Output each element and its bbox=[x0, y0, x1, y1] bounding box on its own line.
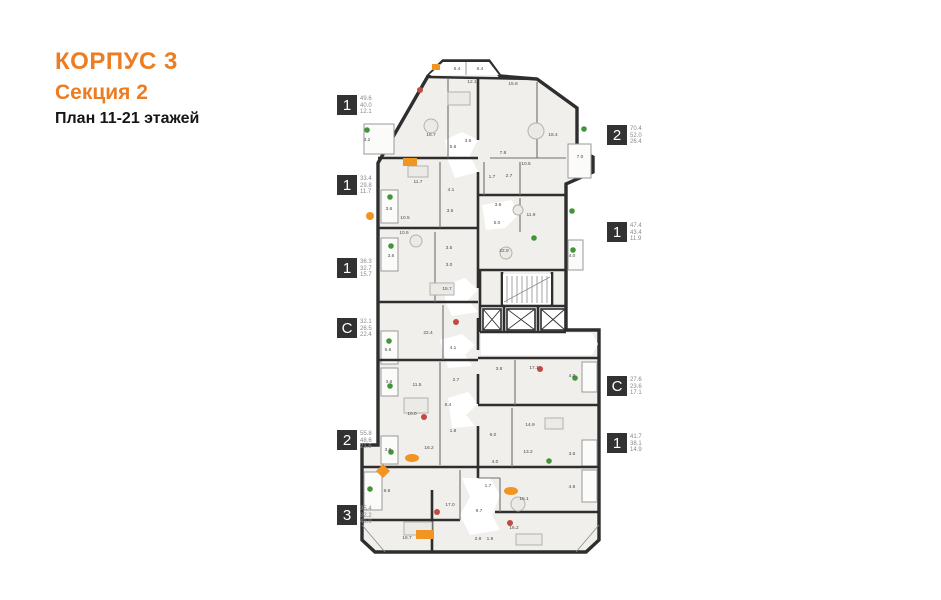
apartment-areas: 49.6 40.0 12.1 bbox=[360, 95, 372, 116]
room-area-label: 11.7 bbox=[414, 179, 423, 185]
room-area-label: 17.1 bbox=[529, 365, 539, 371]
room-area-label: 3.6 bbox=[569, 451, 576, 457]
room-area-label: 16.7 bbox=[402, 535, 412, 541]
area-value: 21.5 bbox=[360, 444, 372, 451]
area-value: 14.9 bbox=[630, 447, 642, 454]
room-area-label: 7.0 bbox=[577, 154, 584, 160]
apartment-badge-left-1: 1 49.6 40.0 12.1 bbox=[337, 95, 372, 116]
room-area-label: 1.8 bbox=[450, 428, 457, 434]
room-area-label: 17.0 bbox=[445, 502, 455, 508]
room-area-label: 6.4 bbox=[445, 402, 452, 408]
room-area-label: 15.8 bbox=[508, 81, 518, 87]
apartment-badge-left-3: 1 36.3 32.7 15.7 bbox=[337, 258, 372, 279]
apartment-badge-left-5: 2 55.8 48.6 21.5 bbox=[337, 430, 372, 451]
room-area-label: 3.6 bbox=[386, 206, 393, 212]
apartment-type: 1 bbox=[607, 433, 627, 453]
area-value: 17.1 bbox=[630, 390, 642, 397]
room-area-label: 4.0 bbox=[569, 373, 576, 379]
room-area-label: 3.6 bbox=[385, 447, 392, 453]
apartment-areas: 41.7 38.1 14.9 bbox=[630, 433, 642, 454]
room-area-label: 3.2 bbox=[364, 137, 371, 143]
room-area-label: 3.6 bbox=[388, 253, 395, 259]
area-value: 11.7 bbox=[360, 189, 372, 196]
room-area-label: 1.7 bbox=[489, 174, 496, 180]
room-area-label: 5.6 bbox=[385, 347, 392, 353]
room-area-label: 16.2 bbox=[424, 445, 434, 451]
apartment-type: 1 bbox=[337, 95, 357, 115]
apartment-areas: 70.4 52.0 26.4 bbox=[630, 125, 642, 146]
room-area-label: 4.0 bbox=[492, 459, 499, 465]
room-area-label: 22.9 bbox=[499, 248, 509, 254]
apartment-badge-left-6: 3 95.4 82.2 49.9 bbox=[337, 505, 372, 526]
room-area-label: 3.6 bbox=[386, 379, 393, 385]
room-area-label: 1.9 bbox=[487, 536, 494, 542]
apartment-areas: 32.1 26.5 22.4 bbox=[360, 318, 372, 339]
area-value: 11.9 bbox=[630, 236, 642, 243]
area-value: 26.4 bbox=[630, 139, 642, 146]
room-area-label: 22.4 bbox=[423, 330, 433, 336]
apartment-type: С bbox=[607, 376, 627, 396]
room-area-label: 6.0 bbox=[490, 432, 497, 438]
room-area-label: 6.4 bbox=[477, 66, 484, 72]
apartment-badge-right-1: 2 70.4 52.0 26.4 bbox=[607, 125, 642, 146]
room-area-label: 9.7 bbox=[476, 508, 483, 514]
apartment-type: 2 bbox=[607, 125, 627, 145]
apartment-type: С bbox=[337, 318, 357, 338]
apartment-areas: 33.4 29.8 11.7 bbox=[360, 175, 372, 196]
room-area-label: 3.6 bbox=[465, 138, 472, 144]
area-value: 22.4 bbox=[360, 332, 372, 339]
room-area-label: 6.6 bbox=[384, 488, 391, 494]
room-area-label: 11.9 bbox=[527, 212, 536, 218]
area-value: 15.7 bbox=[360, 272, 372, 279]
room-area-label: 13.2 bbox=[523, 449, 533, 455]
apartment-areas: 95.4 82.2 49.9 bbox=[360, 505, 372, 526]
room-area-label: 2.9 bbox=[475, 536, 482, 542]
apartment-badge-left-4: С 32.1 26.5 22.4 bbox=[337, 318, 372, 339]
room-area-label: 16.2 bbox=[509, 525, 519, 531]
apartment-type: 1 bbox=[607, 222, 627, 242]
room-area-label: 2.7 bbox=[506, 173, 513, 179]
apartment-areas: 55.8 48.6 21.5 bbox=[360, 430, 372, 451]
stairs-icon bbox=[503, 274, 551, 304]
room-area-label: 14.9 bbox=[525, 422, 535, 428]
apartment-type: 2 bbox=[337, 430, 357, 450]
room-area-label: 3.5 bbox=[447, 208, 454, 214]
apartment-type: 1 bbox=[337, 258, 357, 278]
room-area-label: 11.5 bbox=[413, 382, 422, 388]
room-area-label: 5.0 bbox=[494, 220, 501, 226]
room-area-label: 12.1 bbox=[467, 79, 477, 85]
room-area-label: 18.4 bbox=[548, 132, 558, 138]
apartment-badge-right-3: С 27.6 23.6 17.1 bbox=[607, 376, 642, 397]
room-area-label: 3.5 bbox=[446, 245, 453, 251]
apartment-areas: 47.4 43.4 11.9 bbox=[630, 222, 642, 243]
room-area-label: 10.0 bbox=[407, 411, 417, 417]
room-area-label: 16.1 bbox=[519, 496, 529, 502]
room-area-label: 15.7 bbox=[442, 286, 452, 292]
room-area-label: 7.8 bbox=[500, 150, 507, 156]
apartment-badge-left-2: 1 33.4 29.8 11.7 bbox=[337, 175, 372, 196]
apartment-areas: 36.3 32.7 15.7 bbox=[360, 258, 372, 279]
apartment-areas: 27.6 23.6 17.1 bbox=[630, 376, 642, 397]
room-area-label: 18.7 bbox=[426, 132, 436, 138]
room-area-label: 5.6 bbox=[450, 144, 457, 150]
apartment-type: 1 bbox=[337, 175, 357, 195]
room-area-label: 4.1 bbox=[448, 187, 455, 193]
floorplan-drawing: 6.46.412.115.818.73.25.63.618.47.810.67.… bbox=[0, 0, 941, 600]
apartment-badge-right-4: 1 41.7 38.1 14.9 bbox=[607, 433, 642, 454]
room-area-label: 3.8 bbox=[496, 366, 503, 372]
room-area-label: 3.6 bbox=[495, 202, 502, 208]
area-value: 49.9 bbox=[360, 519, 372, 526]
room-area-label: 10.6 bbox=[521, 161, 531, 167]
room-area-label: 1.7 bbox=[485, 483, 492, 489]
apartment-badge-right-2: 1 47.4 43.4 11.9 bbox=[607, 222, 642, 243]
apartment-type: 3 bbox=[337, 505, 357, 525]
room-area-label: 4.1 bbox=[450, 345, 457, 351]
room-area-label: 10.5 bbox=[399, 230, 409, 236]
room-area-label: 4.0 bbox=[569, 253, 576, 259]
room-area-label: 6.4 bbox=[454, 66, 461, 72]
room-area-label: 3.0 bbox=[446, 262, 453, 268]
floorplan-page: КОРПУС 3 Секция 2 План 11-21 этажей bbox=[0, 0, 941, 600]
area-value: 12.1 bbox=[360, 109, 372, 116]
room-area-label: 10.5 bbox=[400, 215, 410, 221]
room-area-label: 2.7 bbox=[453, 377, 460, 383]
room-area-label: 4.6 bbox=[569, 484, 576, 490]
elevator-icons bbox=[483, 309, 565, 330]
